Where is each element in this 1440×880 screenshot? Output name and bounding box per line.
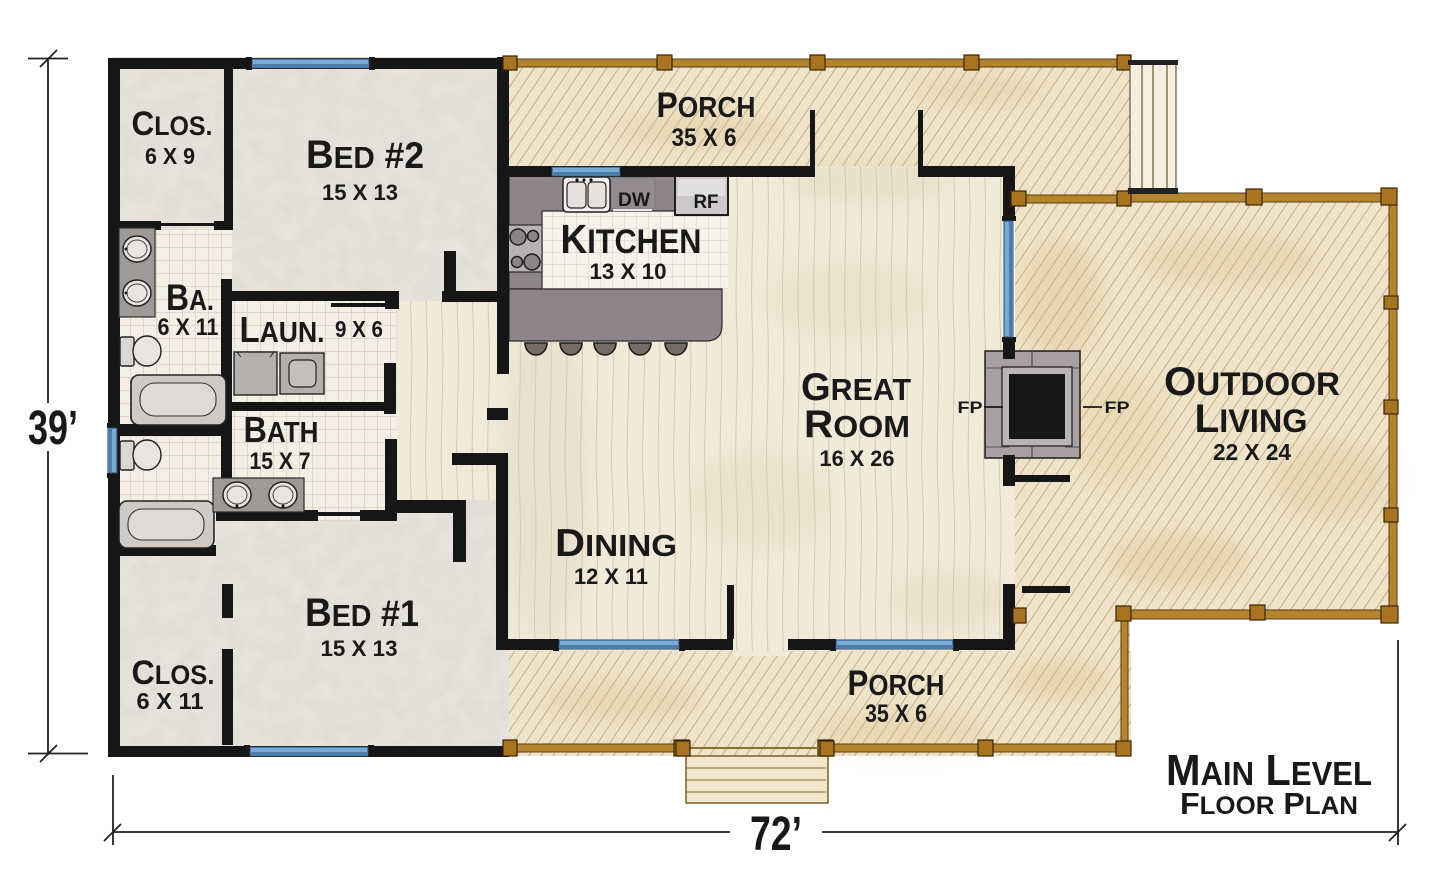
svg-text:6 X 11: 6 X 11 xyxy=(158,314,219,341)
svg-text:22 X 24: 22 X 24 xyxy=(1213,439,1291,465)
svg-text:6 X 11: 6 X 11 xyxy=(137,688,204,714)
svg-text:72’: 72’ xyxy=(750,808,802,861)
svg-text:PORCH: PORCH xyxy=(848,664,945,703)
svg-text:BED #1: BED #1 xyxy=(305,591,419,635)
svg-text:OUTDOOR: OUTDOOR xyxy=(1164,360,1340,404)
svg-text:LIVING: LIVING xyxy=(1195,397,1308,441)
svg-text:DW: DW xyxy=(618,190,650,211)
svg-text:35 X 6: 35 X 6 xyxy=(865,700,927,728)
svg-text:KITCHEN: KITCHEN xyxy=(561,216,702,262)
svg-text:FP: FP xyxy=(958,398,983,417)
svg-text:39’: 39’ xyxy=(28,402,78,455)
svg-text:6 X 9: 6 X 9 xyxy=(145,143,195,169)
svg-text:35 X 6: 35 X 6 xyxy=(672,124,737,152)
svg-text:16 X 26: 16 X 26 xyxy=(820,446,895,471)
svg-text:ROOM: ROOM xyxy=(804,403,910,446)
svg-text:RF: RF xyxy=(694,192,719,213)
svg-text:12 X 11: 12 X 11 xyxy=(574,564,648,589)
svg-text:DINING: DINING xyxy=(555,522,677,565)
svg-text:BED #2: BED #2 xyxy=(306,133,424,177)
svg-text:CLOS.: CLOS. xyxy=(132,654,215,692)
svg-text:15 X 13: 15 X 13 xyxy=(322,180,398,205)
svg-text:FLOOR PLAN: FLOOR PLAN xyxy=(1180,786,1358,821)
svg-text:FP: FP xyxy=(1105,398,1130,417)
svg-text:9 X 6: 9 X 6 xyxy=(335,316,383,342)
svg-text:PORCH: PORCH xyxy=(657,86,756,125)
svg-text:15 X 13: 15 X 13 xyxy=(321,636,398,661)
svg-text:CLOS.: CLOS. xyxy=(132,105,213,143)
svg-text:13 X 10: 13 X 10 xyxy=(590,259,667,284)
svg-text:15 X 7: 15 X 7 xyxy=(250,448,311,475)
